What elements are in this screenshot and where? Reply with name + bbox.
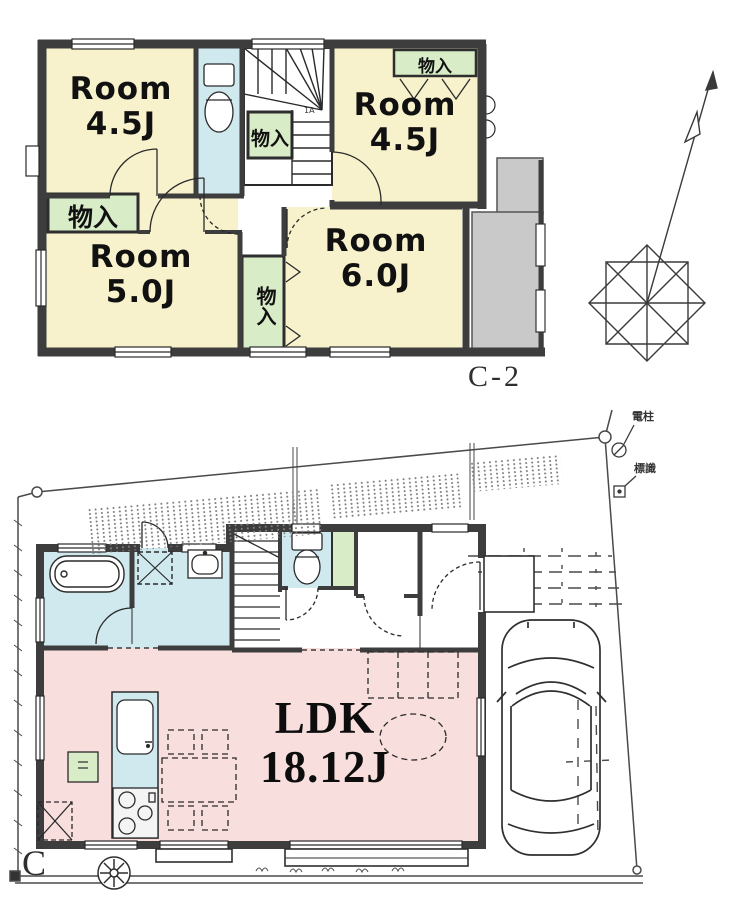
toilet-icon-2f [204,64,234,132]
site-symbols [612,425,636,497]
plan-label-c2: C-2 [443,360,547,394]
closet-label-under-stairs: 物入 [248,124,292,151]
stairs-1f [234,534,280,640]
plan-label-c: C [14,842,54,884]
closet-1f [332,528,356,588]
closet-label-top-right: 物入 [394,52,476,77]
stair-note: 1A [304,106,315,115]
sign-icon [614,476,636,497]
manhole-icon [98,857,130,889]
closet-label-middle: 物入 [251,266,280,346]
car [497,620,606,855]
sign-label: 標識 [634,460,656,476]
room-label-4-5j-right: Room 4.5J [332,88,478,157]
compass-rose [589,72,717,361]
washbasin-icon [188,550,222,578]
floorplan-page: Room 4.5J Room 4.5J Room 5.0J Room 6.0J … [0,0,750,900]
grass-marks [256,868,404,872]
room-label-4-5j-left: Room 4.5J [46,72,196,141]
pole-label: 電柱 [632,408,654,424]
utility-pole-icon [612,425,634,457]
room-label-5-0j: Room 5.0J [46,240,236,309]
room-label-6-0j: Room 6.0J [288,224,464,293]
toilet-icon-1f [292,533,322,584]
ldk-label: LDK 18.12J [190,694,460,791]
closet-label-left: 物入 [48,198,138,234]
bathtub-icon [50,556,124,592]
stove-icon [113,788,158,838]
refrigerator-icon [68,752,98,782]
